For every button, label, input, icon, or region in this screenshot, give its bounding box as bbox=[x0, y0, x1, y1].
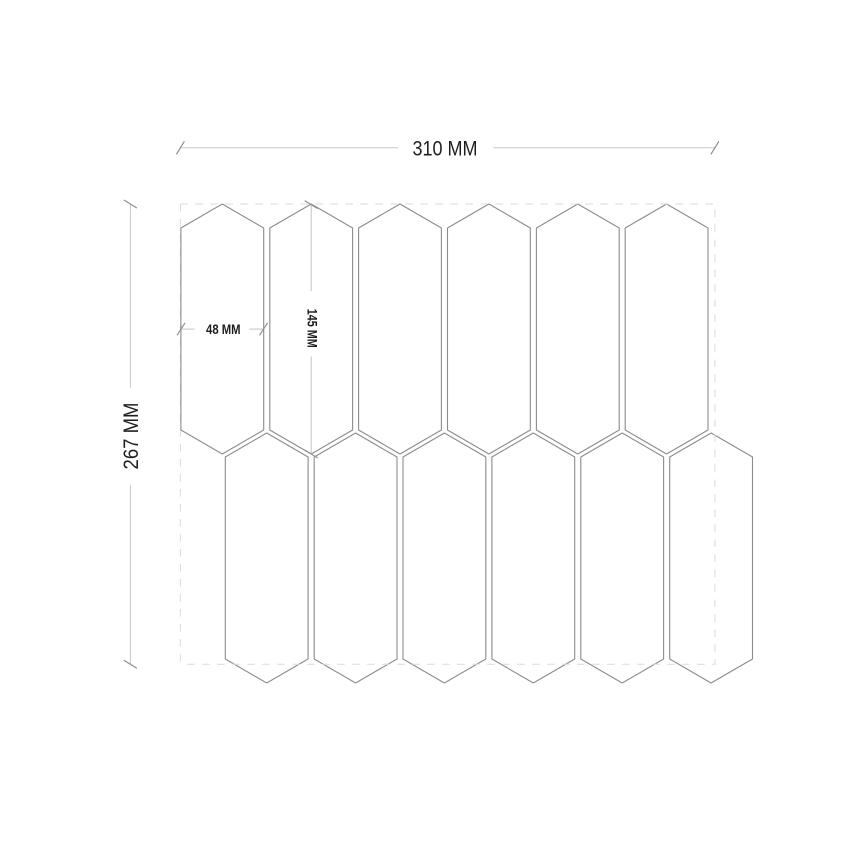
svg-text:267 MM: 267 MM bbox=[120, 403, 143, 470]
svg-text:145 MM: 145 MM bbox=[305, 309, 321, 348]
svg-text:48 MM: 48 MM bbox=[206, 321, 241, 337]
svg-text:310 MM: 310 MM bbox=[413, 137, 478, 160]
